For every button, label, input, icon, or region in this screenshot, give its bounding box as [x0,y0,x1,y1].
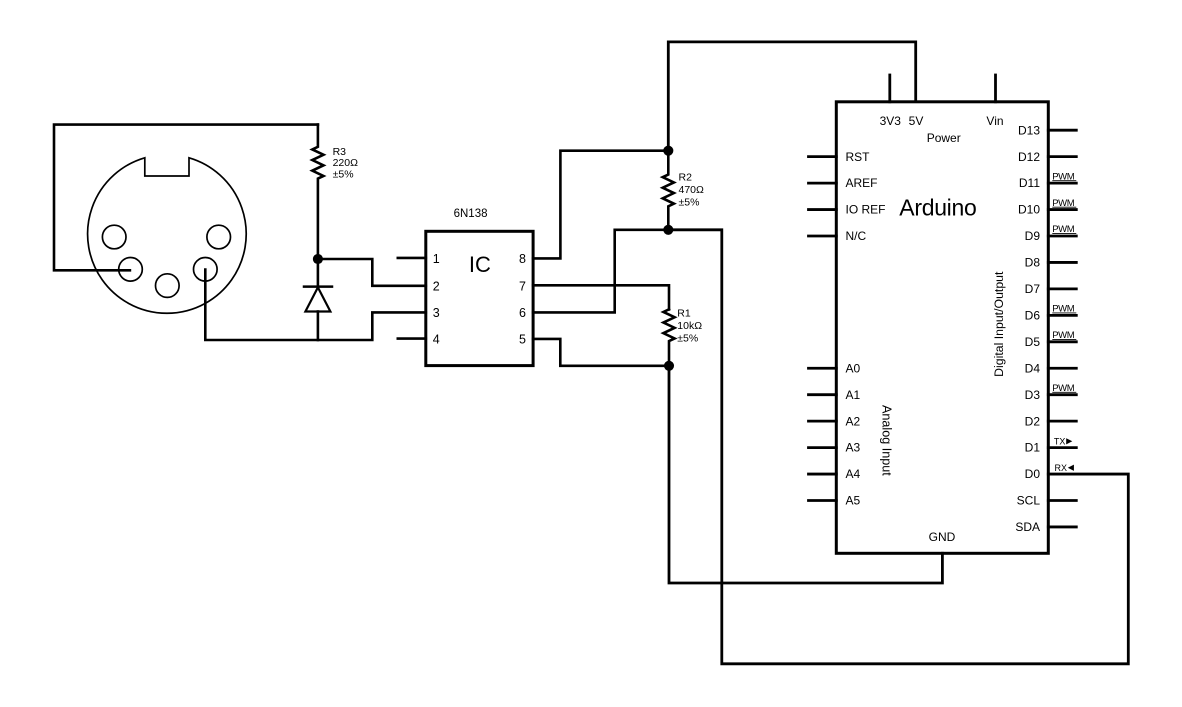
svg-text:D12: D12 [1018,150,1040,164]
svg-text:Digital Input/Output: Digital Input/Output [992,271,1006,377]
svg-text:Power: Power [927,131,961,145]
svg-text:D10: D10 [1018,203,1040,217]
svg-text:±5%: ±5% [679,196,700,208]
svg-text:Analog Input: Analog Input [879,405,893,476]
svg-text:10kΩ: 10kΩ [677,320,702,332]
svg-text:±5%: ±5% [333,169,354,181]
svg-text:RX: RX [1055,463,1068,473]
svg-text:8: 8 [519,252,526,266]
svg-text:A0: A0 [846,361,861,375]
svg-text:IO REF: IO REF [846,203,886,217]
svg-text:D2: D2 [1025,414,1041,428]
svg-text:±5%: ±5% [677,332,698,344]
svg-text:TX: TX [1054,436,1066,446]
svg-text:D0: D0 [1025,467,1041,481]
svg-text:D5: D5 [1025,335,1041,349]
svg-text:4: 4 [433,333,440,347]
svg-text:470Ω: 470Ω [679,184,705,196]
svg-text:5: 5 [519,333,526,347]
svg-text:SCL: SCL [1017,494,1041,508]
svg-text:R1: R1 [677,308,691,320]
svg-text:6: 6 [519,306,526,320]
svg-text:D9: D9 [1025,229,1041,243]
svg-text:GND: GND [929,530,956,544]
svg-text:A2: A2 [846,414,861,428]
svg-text:D8: D8 [1025,256,1041,270]
svg-text:D4: D4 [1025,361,1041,375]
svg-text:A5: A5 [846,494,861,508]
svg-text:220Ω: 220Ω [333,157,359,169]
svg-text:R2: R2 [679,172,693,184]
svg-text:Arduino: Arduino [899,195,976,221]
svg-text:3V3: 3V3 [880,114,902,128]
svg-text:D1: D1 [1025,441,1041,455]
svg-text:Vin: Vin [986,114,1003,128]
svg-text:5V: 5V [909,114,924,128]
svg-text:D3: D3 [1025,388,1041,402]
svg-text:A4: A4 [846,467,861,481]
svg-text:A3: A3 [846,441,861,455]
svg-text:IC: IC [469,252,491,277]
svg-text:7: 7 [519,280,526,294]
svg-text:AREF: AREF [846,176,878,190]
svg-text:6N138: 6N138 [454,208,488,220]
svg-text:2: 2 [433,280,440,294]
svg-text:N/C: N/C [846,229,867,243]
svg-text:1: 1 [433,252,440,266]
svg-text:D7: D7 [1025,282,1041,296]
svg-text:RST: RST [846,150,871,164]
svg-text:3: 3 [433,306,440,320]
svg-text:A1: A1 [846,388,861,402]
svg-text:D11: D11 [1019,176,1040,190]
svg-text:D6: D6 [1025,308,1041,322]
svg-text:SDA: SDA [1015,520,1040,534]
svg-text:D13: D13 [1018,123,1040,137]
